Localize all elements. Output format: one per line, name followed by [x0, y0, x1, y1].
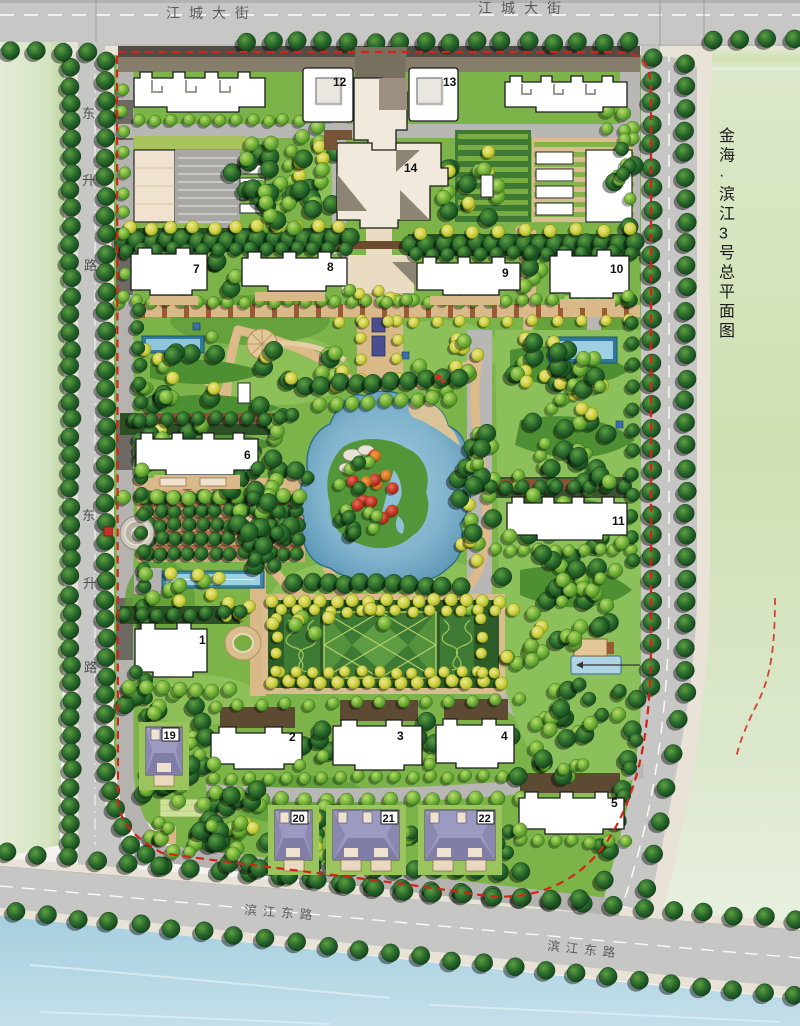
svg-text:14: 14: [404, 161, 418, 175]
svg-text:江城大街: 江城大街: [478, 0, 570, 16]
svg-text:东: 东: [82, 106, 95, 121]
svg-text:3: 3: [719, 226, 728, 243]
svg-text:12: 12: [333, 75, 347, 89]
svg-text:13: 13: [443, 75, 457, 89]
svg-text:号: 号: [719, 244, 735, 262]
svg-text:21: 21: [383, 813, 395, 825]
svg-text:·: ·: [719, 167, 724, 184]
svg-text:9: 9: [502, 266, 509, 280]
svg-text:总: 总: [719, 264, 735, 282]
svg-text:10: 10: [610, 262, 624, 276]
svg-text:面: 面: [719, 304, 735, 321]
svg-text:图: 图: [719, 323, 735, 340]
svg-text:平: 平: [719, 284, 735, 301]
svg-text:8: 8: [327, 260, 334, 274]
svg-text:海: 海: [719, 147, 735, 165]
svg-text:19: 19: [164, 730, 176, 742]
svg-text:升: 升: [83, 576, 96, 591]
svg-text:滨: 滨: [719, 186, 735, 204]
svg-text:20: 20: [293, 813, 305, 825]
svg-text:金: 金: [719, 127, 735, 145]
svg-text:11: 11: [612, 514, 625, 528]
svg-text:东: 东: [82, 508, 95, 523]
svg-text:4: 4: [501, 729, 508, 743]
svg-text:5: 5: [611, 796, 618, 810]
svg-text:6: 6: [244, 448, 251, 462]
svg-text:江: 江: [719, 205, 735, 223]
svg-text:7: 7: [193, 262, 200, 276]
svg-text:22: 22: [479, 813, 491, 825]
svg-text:1: 1: [199, 633, 206, 647]
svg-text:江城大街: 江城大街: [166, 5, 258, 21]
svg-text:3: 3: [397, 729, 404, 743]
svg-text:2: 2: [289, 730, 296, 744]
